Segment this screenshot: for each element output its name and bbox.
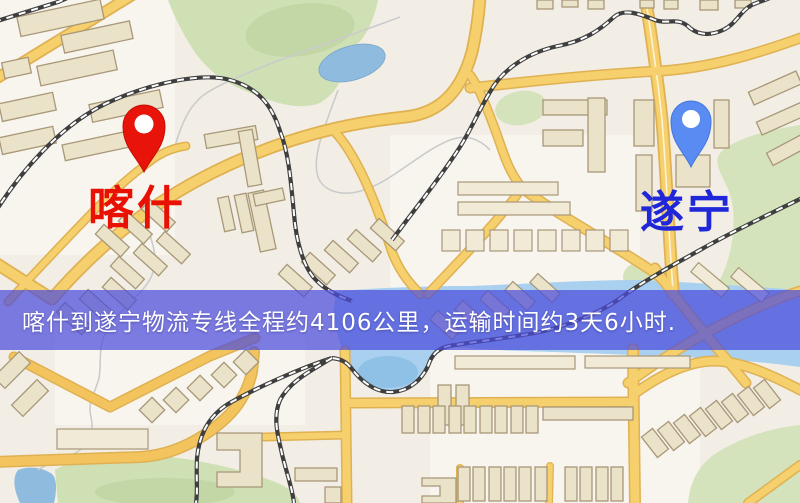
pond-bottom-left xyxy=(14,468,56,503)
route-info-banner: 喀什到遂宁物流专线全程约4106公里，运输时间约3天6小时. xyxy=(0,290,800,350)
destination-city-label: 遂宁 xyxy=(640,176,734,240)
route-info-text: 喀什到遂宁物流专线全程约4106公里，运输时间约3天6小时. xyxy=(0,303,676,337)
route-map-image: 喀什 遂宁 喀什到遂宁物流专线全程约4106公里，运输时间约3天6小时. xyxy=(0,0,800,503)
origin-city-label: 喀什 xyxy=(88,172,186,238)
row-buildings-bottom2 xyxy=(458,467,623,501)
row-buildings-bottom1 xyxy=(402,406,538,433)
map-graphic xyxy=(0,0,800,503)
